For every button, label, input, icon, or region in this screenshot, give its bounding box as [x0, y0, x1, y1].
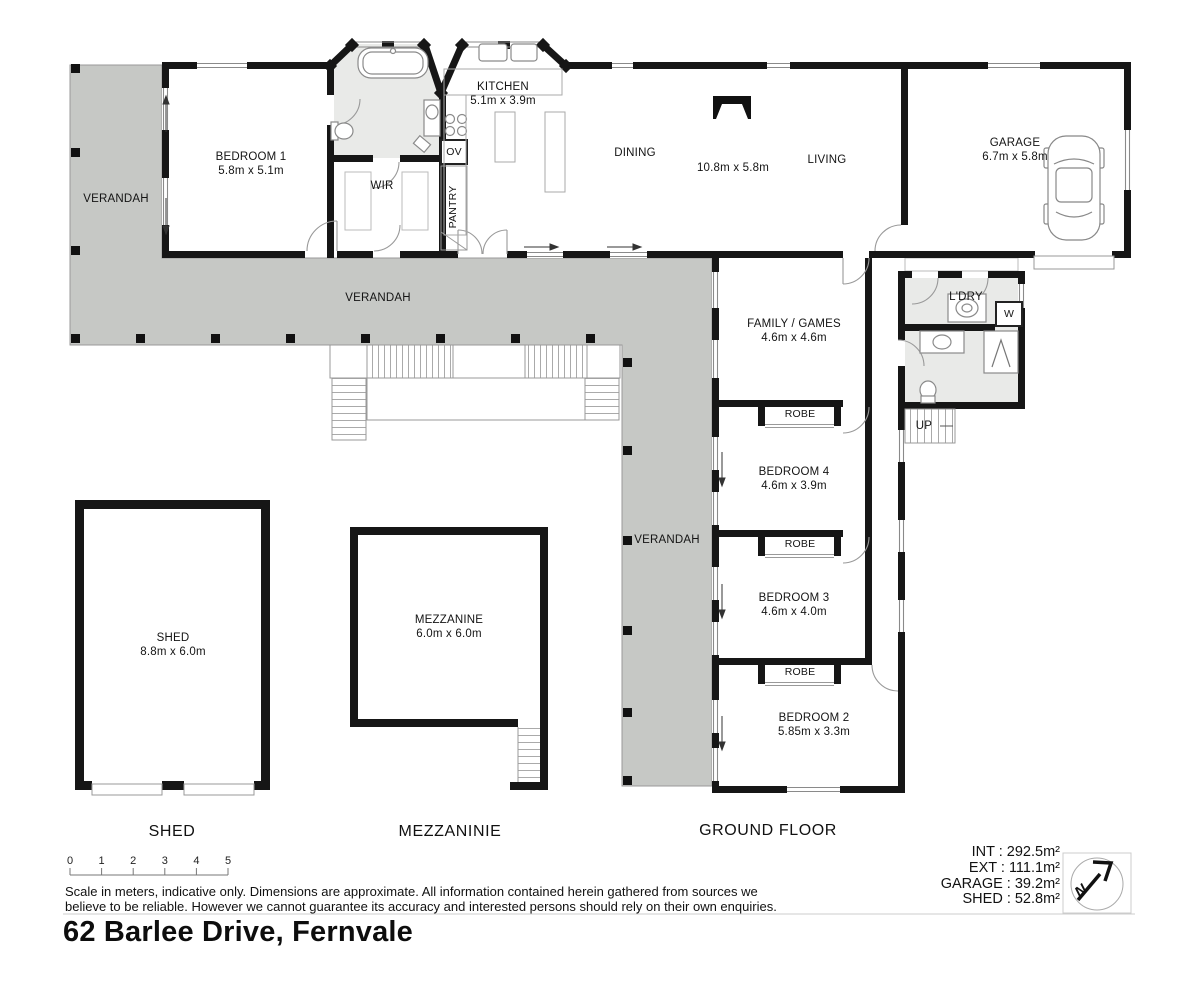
robe2-label: ROBE	[785, 537, 816, 551]
garage-dims: 6.7m x 5.8m	[982, 150, 1047, 164]
bedroom3-label: BEDROOM 3 4.6m x 4.0m	[759, 591, 830, 619]
mezzanine-stairs	[518, 727, 540, 782]
dining-label: DINING	[614, 146, 655, 160]
compass-icon	[1063, 853, 1131, 913]
verandah-left-label: VERANDAH	[83, 192, 149, 206]
robe3-label: ROBE	[785, 665, 816, 679]
deck-and-stairs	[330, 345, 620, 440]
bedroom2-label: BEDROOM 2 5.85m x 3.3m	[778, 711, 850, 739]
bathroom-vanity-icon	[920, 331, 964, 353]
mezzanine-room-label: MEZZANINE 6.0m x 6.0m	[415, 613, 483, 641]
bedroom3-dims: 4.6m x 4.0m	[759, 605, 830, 619]
bathtub-icon	[358, 48, 428, 78]
bedroom3-name: BEDROOM 3	[759, 591, 830, 605]
pantry-label: PANTRY	[446, 186, 460, 229]
bedroom4-dims: 4.6m x 3.9m	[759, 479, 830, 493]
floorplan-page: VERANDAH BEDROOM 1 5.8m x 5.1m WIR OV PA…	[0, 0, 1200, 992]
garage-label: GARAGE 6.7m x 5.8m	[982, 136, 1047, 164]
up-label: UP	[916, 419, 932, 433]
shower-icon	[984, 331, 1018, 373]
bedroom1-name: BEDROOM 1	[216, 150, 287, 164]
bedroom2-dims: 5.85m x 3.3m	[778, 725, 850, 739]
robe-doors	[765, 425, 834, 686]
laundry-label: L'DRY	[949, 290, 983, 304]
property-address-title: 62 Barlee Drive, Fernvale	[63, 916, 413, 949]
bedroom4-name: BEDROOM 4	[759, 465, 830, 479]
oven-label: OV	[446, 145, 462, 159]
bedroom2-name: BEDROOM 2	[778, 711, 850, 725]
verandah-top-label: VERANDAH	[345, 291, 411, 305]
shed-floor-title: SHED	[149, 823, 196, 841]
bedroom1-label: BEDROOM 1 5.8m x 5.1m	[216, 150, 287, 178]
shed-room-label: SHED 8.8m x 6.0m	[140, 631, 205, 659]
garage-name: GARAGE	[982, 136, 1047, 150]
ground-floor-title: GROUND FLOOR	[699, 822, 837, 840]
kitchen-dims: 5.1m x 3.9m	[470, 94, 535, 108]
toilet-icon	[331, 122, 353, 140]
fireplace-icon	[713, 96, 751, 119]
bedroom4-label: BEDROOM 4 4.6m x 3.9m	[759, 465, 830, 493]
kitchen-name: KITCHEN	[470, 80, 535, 94]
area-garage: GARAGE : 39.2m²	[0, 877, 1060, 893]
washer-label: W	[1004, 307, 1014, 321]
mezzanine-name: MEZZANINE	[415, 613, 483, 627]
verandah-side-label: VERANDAH	[634, 533, 700, 547]
kitchen-label: KITCHEN 5.1m x 3.9m	[470, 80, 535, 108]
shed-name: SHED	[140, 631, 205, 645]
robe1-label: ROBE	[785, 407, 816, 421]
mezzanine-floor-title: MEZZANINIE	[399, 823, 502, 841]
bedroom1-dims: 5.8m x 5.1m	[216, 164, 287, 178]
area-summary: INT : 292.5m² EXT : 111.1m² GARAGE : 39.…	[0, 845, 1060, 908]
cooktop-icon	[446, 115, 467, 136]
living-dims-label: 10.8m x 5.8m	[697, 161, 769, 175]
area-ext: EXT : 111.1m²	[0, 861, 1060, 877]
area-int: INT : 292.5m²	[0, 845, 1060, 861]
mezzanine-dims: 6.0m x 6.0m	[415, 627, 483, 641]
wir-label: WIR	[371, 179, 394, 193]
area-shed: SHED : 52.8m²	[0, 892, 1060, 908]
family-dims: 4.6m x 4.6m	[747, 331, 841, 345]
car-icon	[1044, 136, 1104, 240]
shed-dims: 8.8m x 6.0m	[140, 645, 205, 659]
toilet2-icon	[920, 381, 936, 403]
family-label: FAMILY / GAMES 4.6m x 4.6m	[747, 317, 841, 345]
living-label: LIVING	[808, 153, 847, 167]
porch-strip	[905, 258, 1018, 271]
family-name: FAMILY / GAMES	[747, 317, 841, 331]
